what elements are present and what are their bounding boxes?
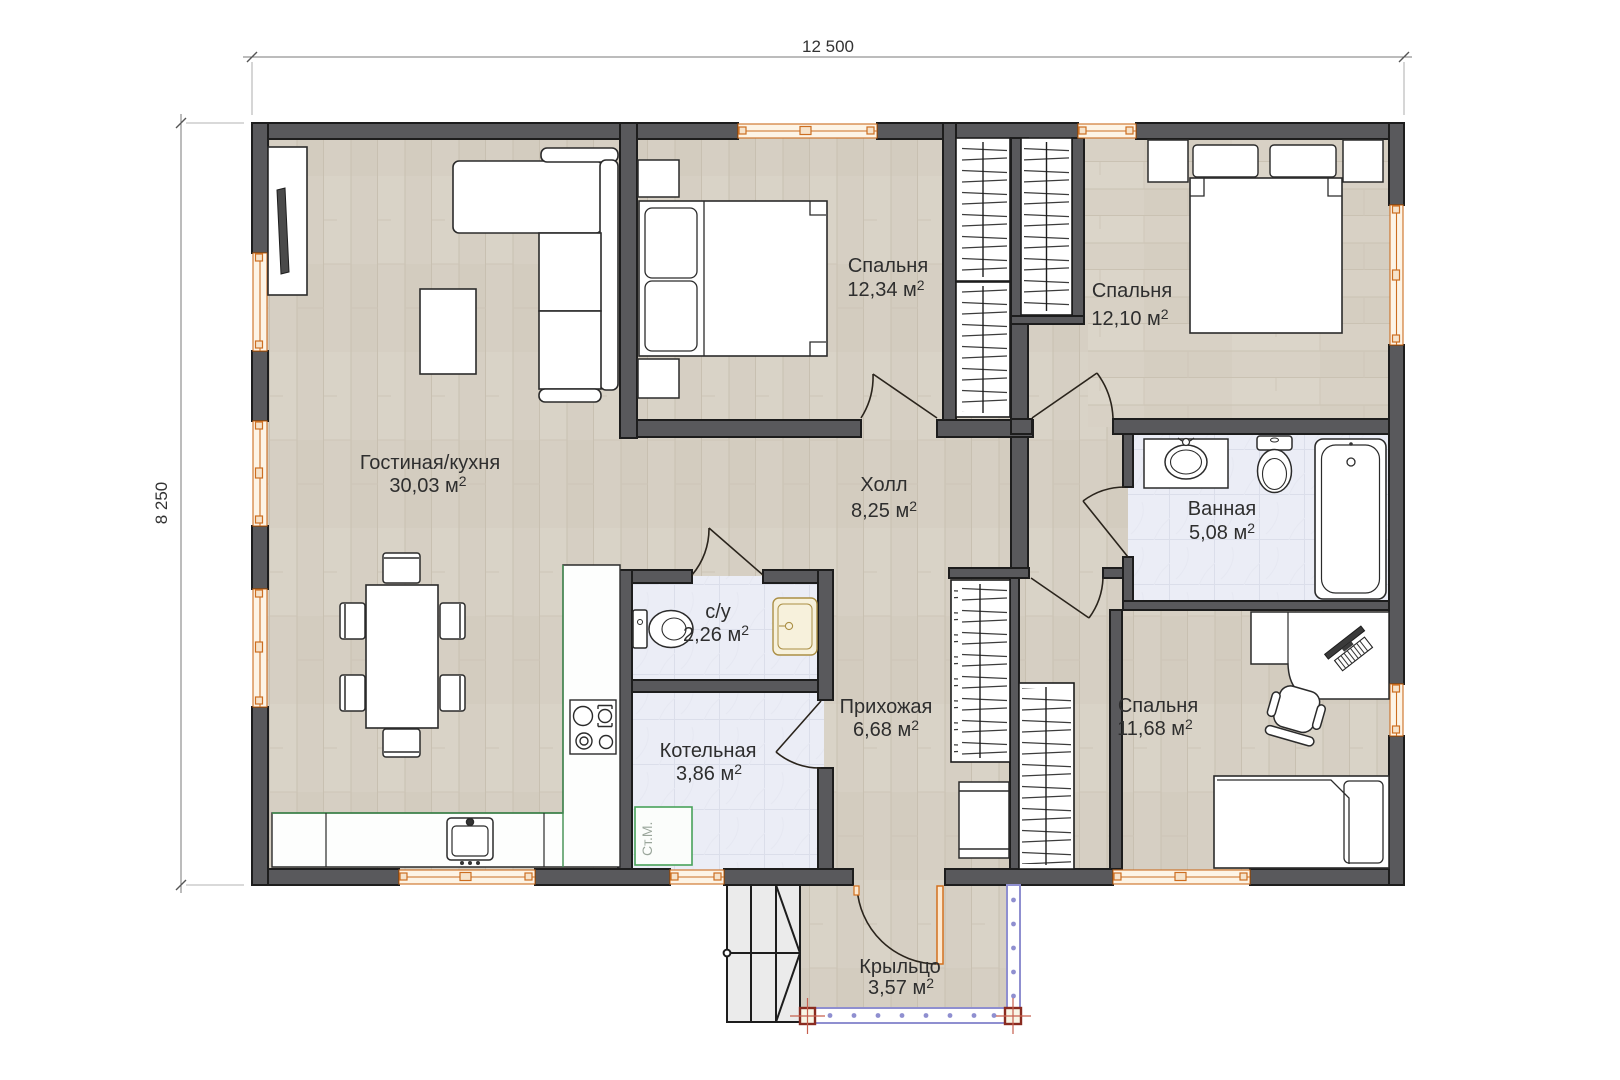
svg-text:Ст.М.: Ст.М. — [639, 822, 655, 856]
svg-text:30,03 м2: 30,03 м2 — [389, 473, 466, 497]
svg-text:Гостиная/кухня: Гостиная/кухня — [360, 452, 500, 474]
svg-text:Ванная: Ванная — [1188, 498, 1257, 520]
svg-text:Спальня: Спальня — [1092, 280, 1172, 302]
svg-text:Прихожая: Прихожая — [840, 696, 933, 718]
svg-text:12,10 м2: 12,10 м2 — [1091, 306, 1168, 330]
svg-text:8 250: 8 250 — [152, 482, 171, 525]
svg-text:5,08 м2: 5,08 м2 — [1189, 520, 1255, 544]
svg-text:2,26 м2: 2,26 м2 — [683, 622, 749, 646]
svg-text:11,68 м2: 11,68 м2 — [1117, 716, 1193, 740]
svg-text:Котельная: Котельная — [660, 740, 757, 762]
svg-text:8,25 м2: 8,25 м2 — [851, 498, 917, 522]
svg-text:Холл: Холл — [860, 474, 907, 496]
svg-text:6,68 м2: 6,68 м2 — [853, 717, 919, 741]
svg-text:3,86 м2: 3,86 м2 — [676, 761, 742, 785]
svg-text:12,34 м2: 12,34 м2 — [847, 277, 924, 301]
svg-text:Спальня: Спальня — [848, 255, 928, 277]
svg-text:12 500: 12 500 — [802, 37, 854, 56]
svg-text:с/у: с/у — [705, 601, 731, 623]
svg-text:3,57 м2: 3,57 м2 — [868, 975, 934, 999]
svg-text:Спальня: Спальня — [1118, 695, 1198, 717]
